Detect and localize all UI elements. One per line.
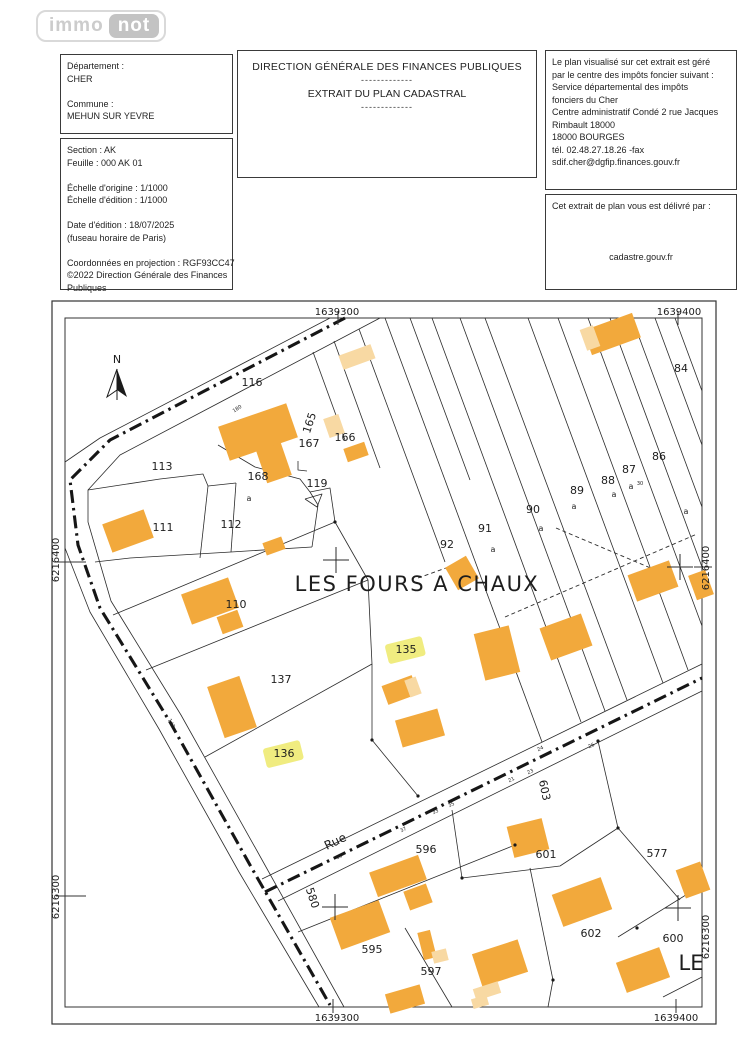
parcel-sub-letter: a (612, 490, 617, 499)
grid-coordinate: 6216400 (51, 538, 62, 583)
boundary-point (513, 843, 516, 846)
parcel-sub-letter: 30 (637, 481, 643, 487)
highlighted-parcel-number: 136 (274, 747, 295, 760)
parcel-number: 90 (526, 503, 540, 516)
parcel-number: 86 (652, 450, 666, 463)
grid-coordinate: 6216400 (701, 546, 712, 591)
parcel-number: 602 (581, 927, 602, 940)
boundary-point (416, 794, 419, 797)
parcel-number: 88 (601, 474, 615, 487)
parcel-sub-letter: a (491, 545, 496, 554)
boundary-point (596, 739, 599, 742)
parcel-number: 116 (242, 376, 263, 389)
parcel-sub-letter: a (572, 502, 577, 511)
parcel-sub-letter: a (684, 507, 689, 516)
parcel-number: 166 (335, 431, 356, 444)
parcel-number: 167 (299, 437, 320, 450)
boundary-point (460, 876, 463, 879)
parcel-number: 577 (647, 847, 668, 860)
parcel-number: 110 (226, 598, 247, 611)
boundary-point (333, 520, 336, 523)
lieu-dit-name: LES FOURS A CHAUX (295, 572, 540, 596)
north-letter: N (113, 353, 121, 366)
highlighted-parcel-number: 135 (396, 643, 417, 656)
parcel-sub-letter: a (247, 494, 252, 503)
parcel-number: 87 (622, 463, 636, 476)
page: { "logo": {"immo": "immo", "not": "not"}… (0, 0, 750, 1061)
parcel-number: 601 (536, 848, 557, 861)
boundary-point (551, 978, 554, 981)
parcel-number: 112 (221, 518, 242, 531)
parcel-sub-letter: a (629, 482, 634, 491)
parcel-number: 595 (362, 943, 383, 956)
parcel-number: 84 (674, 362, 688, 375)
parcel-sub-letter: a (539, 524, 544, 533)
partial-lieu-dit-name: LE (679, 951, 704, 975)
parcel-number: 597 (421, 965, 442, 978)
grid-coordinate: 1639300 (315, 1013, 360, 1024)
parcel-number: 89 (570, 484, 584, 497)
grid-coordinate: 1639400 (654, 1013, 699, 1024)
cadastral-map: 1351361161131111121681191671661651101379… (0, 0, 750, 1061)
boundary-point (616, 826, 619, 829)
parcel-number: 596 (416, 843, 437, 856)
parcel-number: 168 (248, 470, 269, 483)
grid-coordinate: 1639300 (315, 307, 360, 318)
parcel-number: 92 (440, 538, 454, 551)
grid-coordinate: 1639400 (657, 307, 702, 318)
parcel-number: 137 (271, 673, 292, 686)
grid-coordinate: 6216300 (51, 875, 62, 920)
parcel-number: 600 (663, 932, 684, 945)
boundary-point (635, 926, 638, 929)
boundary-point (370, 738, 373, 741)
parcel-number: 111 (153, 521, 174, 534)
parcel-number: 119 (307, 477, 328, 490)
parcel-number: 113 (152, 460, 173, 473)
parcel-number: 91 (478, 522, 492, 535)
